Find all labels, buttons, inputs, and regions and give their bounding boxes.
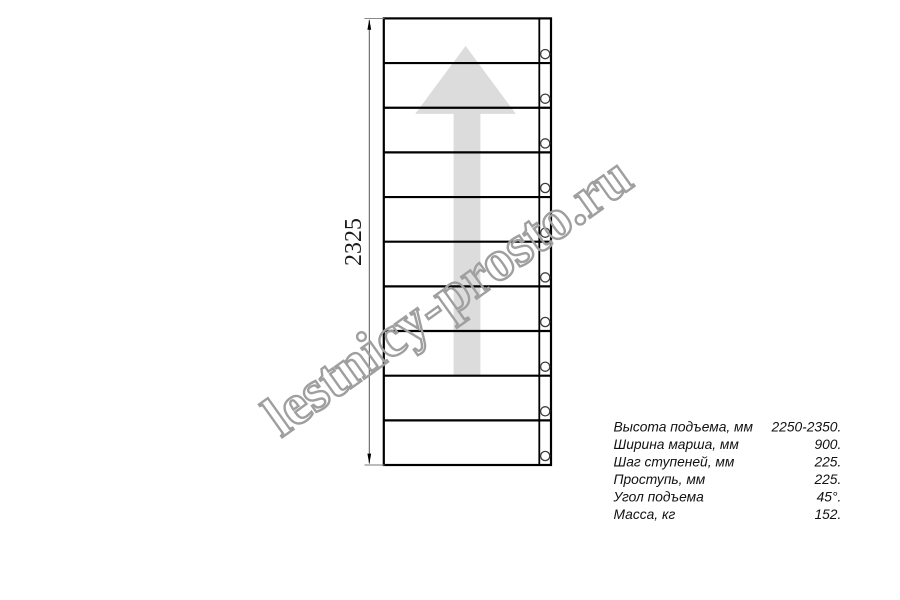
svg-text:2250-2350.: 2250-2350. — [770, 419, 841, 434]
svg-text:Высота подъема, мм: Высота подъема, мм — [614, 419, 754, 434]
svg-text:Масса, кг: Масса, кг — [614, 507, 676, 522]
svg-text:225.: 225. — [813, 454, 841, 469]
svg-text:45°.: 45°. — [817, 489, 842, 504]
svg-text:Шаг ступеней, мм: Шаг ступеней, мм — [614, 454, 735, 469]
svg-text:152.: 152. — [814, 507, 841, 522]
svg-text:Проступь, мм: Проступь, мм — [614, 472, 706, 487]
svg-text:Ширина марша, мм: Ширина марша, мм — [614, 437, 740, 452]
svg-text:900.: 900. — [814, 437, 841, 452]
svg-text:225.: 225. — [813, 472, 841, 487]
svg-text:Угол подъема: Угол подъема — [613, 489, 705, 504]
svg-text:2325: 2325 — [341, 218, 367, 266]
